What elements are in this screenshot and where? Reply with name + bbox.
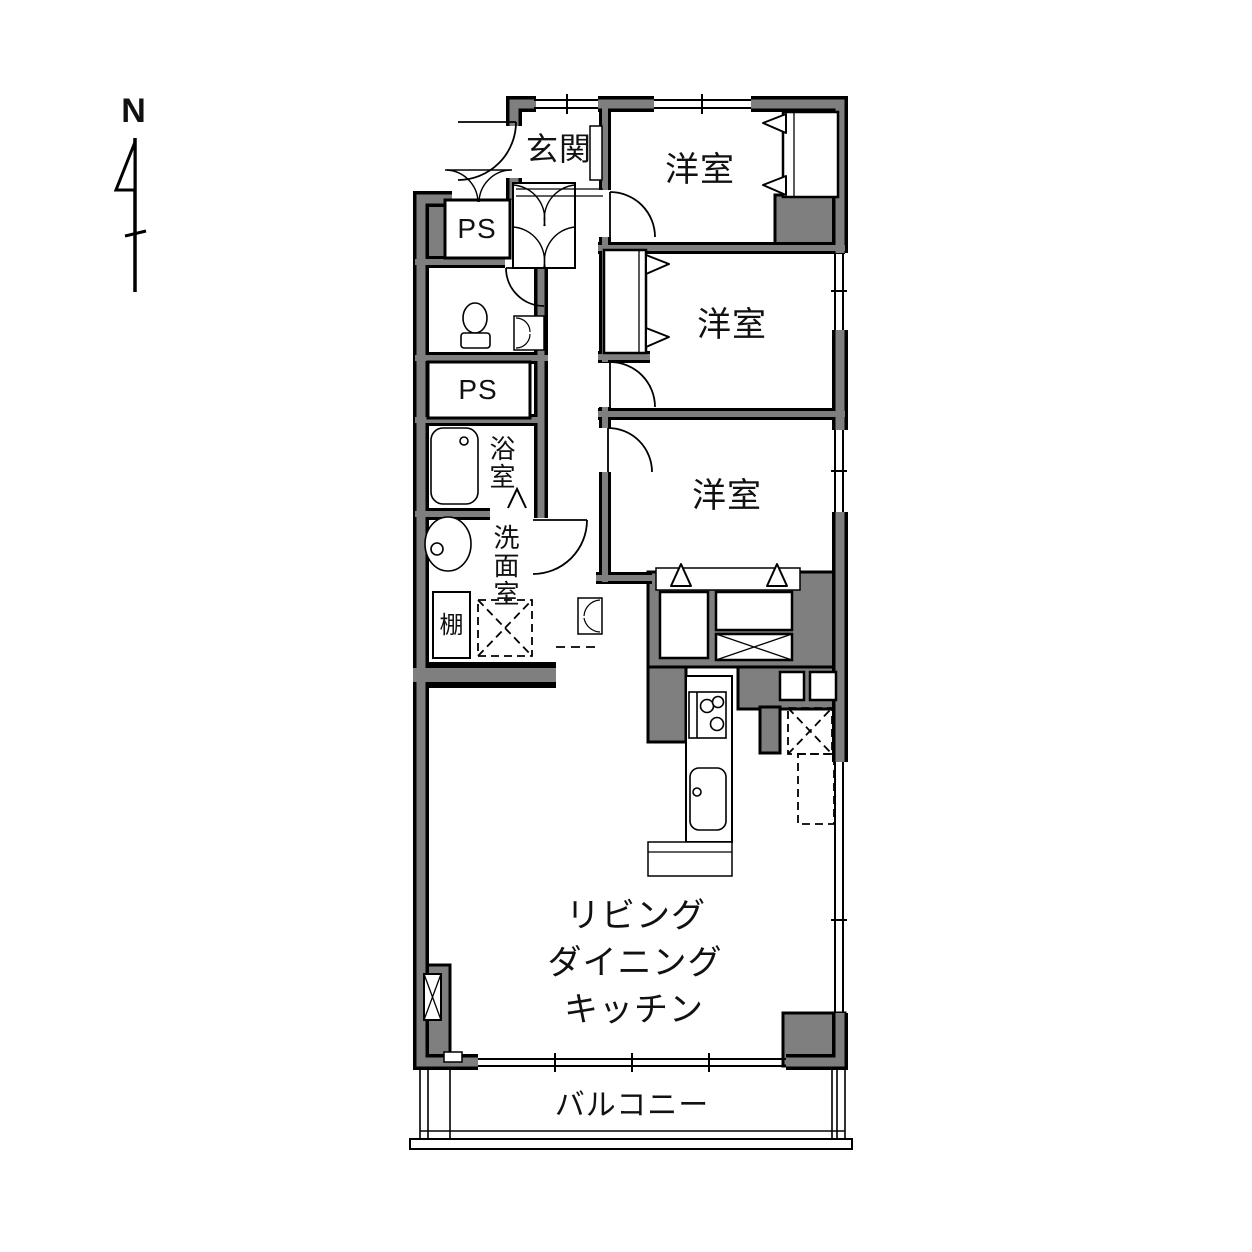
balcony-sliding-door	[478, 1053, 786, 1072]
room-label-ps1: PS	[457, 215, 496, 243]
closet1-arrow-left-2	[763, 176, 786, 195]
room-label-ps2: PS	[458, 376, 497, 404]
room-label-bedroom3: 洋室	[692, 479, 762, 513]
room-label-washroom: 洗面室	[492, 524, 518, 608]
washing-machine-space	[478, 600, 532, 656]
ps-double-doors	[445, 170, 512, 202]
washbasin	[425, 517, 471, 571]
storage-compartment-b	[716, 592, 792, 630]
balcony-outer-rail	[410, 1139, 852, 1149]
duct-box-1	[780, 672, 804, 700]
north-label: N	[121, 94, 147, 128]
bathroom-door-mark	[508, 489, 526, 508]
kitchen-counter-base	[648, 842, 732, 876]
room-label-bedroom1: 洋室	[665, 153, 735, 187]
room-label-shelf: 棚	[440, 614, 465, 638]
floor-plan-drawing	[0, 0, 1252, 1252]
room-label-entrance: 玄関	[526, 133, 592, 165]
room-label-bathroom: 浴室	[488, 435, 514, 491]
bathtub	[431, 428, 478, 504]
toilet-cabinet	[514, 316, 544, 350]
closet-bedroom2	[604, 250, 646, 353]
refrigerator-space	[788, 708, 834, 824]
floor-plan: N 玄関 洋室 洋室 洋室 PS PS 浴室 洗面室 棚 リビング ダイニング …	[0, 0, 1252, 1252]
room-label-bedroom2: 洋室	[697, 308, 767, 342]
kitchen-stove	[689, 692, 726, 738]
room-label-ldk-3: キッチン	[564, 993, 704, 1027]
bedroom2-door	[610, 362, 655, 407]
washroom-door	[533, 520, 587, 574]
entrance-door	[458, 122, 516, 180]
closet1-arrow-left-1	[763, 114, 786, 133]
bedroom3-door	[608, 428, 652, 472]
toilet	[461, 303, 490, 348]
duct-box-2	[810, 672, 836, 700]
closet2-arrow-right-1	[646, 255, 669, 274]
bedroom1-door	[610, 192, 655, 237]
kitchen-sink	[690, 768, 726, 830]
storage-compartment-a	[660, 592, 708, 658]
corner-notch	[444, 1052, 462, 1062]
closet2-arrow-right-2	[646, 328, 669, 347]
room-label-ldk-2: ダイニング	[548, 946, 723, 980]
room-label-balcony: バルコニー	[555, 1091, 709, 1121]
room-label-ldk-1: リビング	[566, 899, 706, 933]
closet-bedroom1	[783, 112, 838, 197]
north-arrow-icon	[116, 138, 146, 292]
